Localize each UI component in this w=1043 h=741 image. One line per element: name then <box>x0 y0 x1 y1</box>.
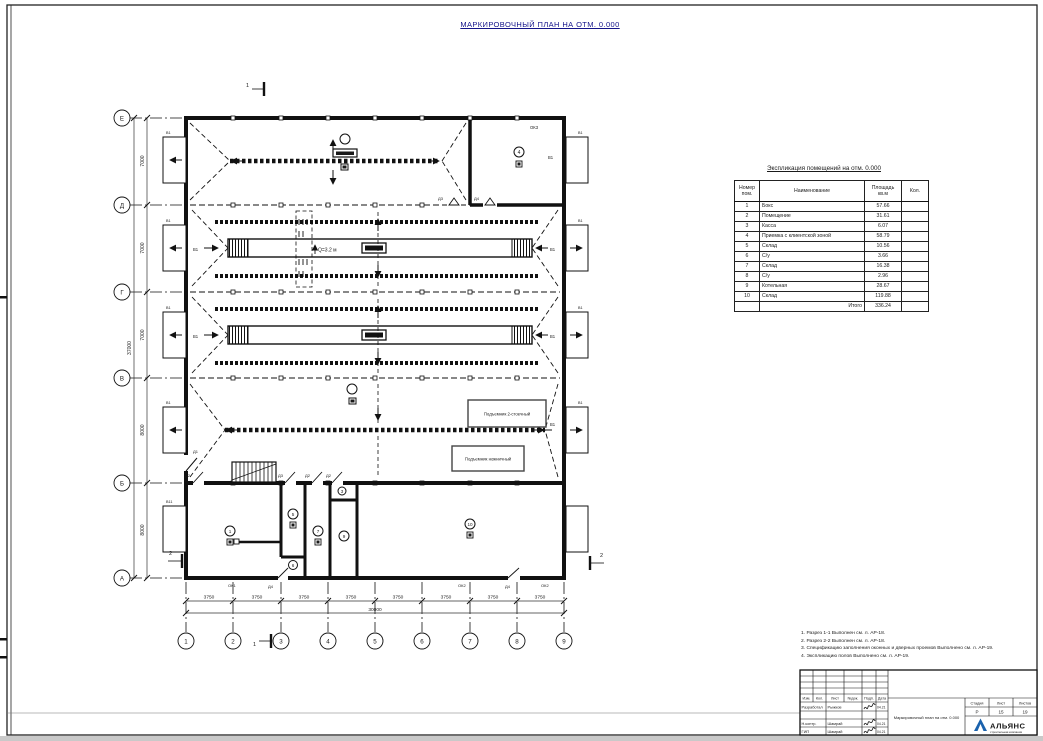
svg-text:3750: 3750 <box>252 595 263 601</box>
svg-text:1: 1 <box>246 83 249 89</box>
svg-text:3750: 3750 <box>204 595 215 601</box>
window-label-v11: В11 <box>166 500 172 504</box>
stairs <box>232 462 276 482</box>
svg-text:1: 1 <box>229 529 232 534</box>
svg-text:8000: 8000 <box>140 424 146 435</box>
window-label: В1 <box>193 247 199 252</box>
svg-text:5: 5 <box>373 639 377 646</box>
explication-title: Экспликация помещений на отм. 0.000 <box>734 165 914 172</box>
door-label: Д4 <box>505 584 511 589</box>
svg-text:В1: В1 <box>578 401 583 405</box>
svg-text:Шамрай: Шамрай <box>828 721 843 726</box>
title-block: Изм. Кол. Лист №док. Подп. Дата Разработ… <box>800 670 1037 735</box>
room-tag-number: 4 <box>518 150 521 156</box>
svg-text:Разработал: Разработал <box>802 705 823 710</box>
drawing-sheet: МАРКИРОВОЧНЫЙ ПЛАН НА ОТМ. 0.000 <box>0 0 1043 741</box>
svg-text:В1: В1 <box>578 219 583 223</box>
svg-text:10: 10 <box>467 522 473 527</box>
table-row: 7Склад16.38 <box>735 262 929 272</box>
total-label: Итого <box>760 302 865 312</box>
svg-text:2: 2 <box>169 551 172 557</box>
equipment-tag <box>333 134 357 170</box>
note-line: 2. Разрез 2-2 Выполнен см. л. АР-18. <box>801 638 1036 646</box>
table-row: 2Помещение31.61 <box>735 212 929 222</box>
table-row: 1Бокс57.66 <box>735 202 929 212</box>
svg-text:3: 3 <box>279 639 283 646</box>
bottom-total-dim: 30000 <box>368 607 382 613</box>
svg-text:Р: Р <box>975 710 978 715</box>
svg-text:В1: В1 <box>166 401 171 405</box>
opening-label: ОК2 <box>541 583 549 588</box>
door-label: Д4 <box>474 196 480 201</box>
svg-text:В1: В1 <box>578 306 583 310</box>
svg-text:7000: 7000 <box>140 242 146 253</box>
svg-text:ГИП: ГИП <box>802 729 810 734</box>
svg-text:Подп.: Подп. <box>864 697 874 701</box>
note-line: 1. Разрез 1-1 Выполнен см. л. АР-18. <box>801 630 1036 638</box>
svg-text:9: 9 <box>343 534 346 539</box>
svg-text:15: 15 <box>998 710 1004 715</box>
window-label: В1 <box>550 334 556 339</box>
svg-text:8000: 8000 <box>140 524 146 535</box>
table-row: 5Склад10.56 <box>735 242 929 252</box>
band-3: В1 В1 <box>192 297 558 373</box>
door-label: Д3 <box>278 473 284 478</box>
edge-window-arrows <box>170 160 582 430</box>
svg-text:Лист: Лист <box>831 697 839 701</box>
note-line: 3. Спецификацию заполнения оконных и две… <box>801 645 1036 653</box>
svg-text:3750: 3750 <box>299 595 310 601</box>
table-row: 4Приемка с клиентской зоной58.79 <box>735 232 929 242</box>
svg-text:Н.контр.: Н.контр. <box>802 721 817 726</box>
svg-text:Лист: Лист <box>997 702 1006 706</box>
table-row: 6С/у3.66 <box>735 252 929 262</box>
left-total-dim: 37000 <box>127 341 133 355</box>
svg-text:8: 8 <box>515 639 519 646</box>
window-label: В1 <box>193 334 199 339</box>
band-1: 4 ОК3 В1 Д3 Д4 <box>190 123 554 209</box>
svg-text:В1: В1 <box>166 306 171 310</box>
door-label: Д2 <box>185 473 191 478</box>
svg-text:Шамрай: Шамрай <box>828 729 843 734</box>
window-label: В1 <box>550 247 556 252</box>
explication-table: Номер пом. Наименование Площадь кв.м Кол… <box>734 180 929 312</box>
doc-title: Маркировочный план на отм. 0.000 <box>894 715 960 720</box>
svg-text:3: 3 <box>341 489 344 494</box>
opening-label: ОК1 <box>228 583 236 588</box>
svg-text:4: 4 <box>326 639 330 646</box>
lift-box-1-label: Подъемник 2-стоечный <box>484 412 531 417</box>
svg-text:1: 1 <box>184 639 188 646</box>
svg-text:04.21: 04.21 <box>877 730 886 734</box>
table-row: 9Котельная28.67 <box>735 282 929 292</box>
building-outline <box>186 118 564 578</box>
sheet-frame <box>0 5 1037 735</box>
explication-header-row: Номер пом. Наименование Площадь кв.м Кол… <box>735 181 929 202</box>
explication-block: Экспликация помещений на отм. 0.000 Номе… <box>734 165 914 312</box>
svg-text:7: 7 <box>468 639 472 646</box>
svg-text:04.21: 04.21 <box>877 722 886 726</box>
door-label: Д4 <box>268 584 274 589</box>
equipment-tag <box>347 384 357 404</box>
lift-box-2-label: Подъемник ножничный <box>465 457 512 462</box>
opening-label-ok3: ОК3 <box>530 125 539 130</box>
svg-text:7000: 7000 <box>140 155 146 166</box>
svg-text:В: В <box>120 376 124 383</box>
svg-text:6: 6 <box>292 563 295 568</box>
band-5: Д2 Д3 Д2 Д2 <box>185 462 564 589</box>
svg-text:Кол.: Кол. <box>816 697 823 701</box>
svg-text:№док.: №док. <box>848 697 859 701</box>
table-row: 3Касса6.07 <box>735 222 929 232</box>
room-tag: 4 <box>514 147 524 167</box>
svg-text:2: 2 <box>600 553 603 559</box>
svg-text:6: 6 <box>420 639 424 646</box>
svg-text:1: 1 <box>253 642 256 648</box>
svg-text:5: 5 <box>292 512 295 517</box>
svg-text:Б: Б <box>120 481 124 488</box>
svg-text:2: 2 <box>231 639 235 646</box>
door-label: Д2 <box>326 473 332 478</box>
logo-subtitle: строительная компания <box>990 730 1022 734</box>
table-row: 10Склад119.88 <box>735 292 929 302</box>
svg-text:Дата: Дата <box>878 697 887 701</box>
window-label: В1 <box>550 422 556 427</box>
svg-text:Листов: Листов <box>1019 702 1031 706</box>
svg-text:Стадия: Стадия <box>971 702 984 706</box>
band-2: Q=3.2 м В1 В1 <box>192 210 558 287</box>
svg-text:04.21: 04.21 <box>877 706 886 710</box>
svg-text:Е: Е <box>120 116 124 123</box>
bottom-dimensions: 3750 3750 3750 3750 3750 3750 3750 3750 … <box>178 582 572 649</box>
svg-text:3750: 3750 <box>535 595 546 601</box>
svg-text:7000: 7000 <box>140 329 146 340</box>
table-row: 8С/у2.96 <box>735 272 929 282</box>
svg-text:3750: 3750 <box>441 595 452 601</box>
opening-label: ОК2 <box>458 583 466 588</box>
svg-text:7: 7 <box>317 529 320 534</box>
note-line: 4. Экспликацию полов Выполнено см. л. АР… <box>801 653 1036 661</box>
total-row: Итого 336.24 <box>735 302 929 312</box>
page-bottom-strip <box>0 736 1043 741</box>
svg-text:3750: 3750 <box>346 595 357 601</box>
door-label: Д3 <box>438 196 444 201</box>
svg-text:3750: 3750 <box>488 595 499 601</box>
door-label: Д2 <box>305 473 311 478</box>
window-label: В1 <box>548 155 554 160</box>
svg-text:Изм.: Изм. <box>803 697 811 701</box>
svg-text:В1: В1 <box>578 131 583 135</box>
total-value: 336.24 <box>865 302 902 312</box>
svg-text:В1: В1 <box>166 219 171 223</box>
svg-text:Рыжков: Рыжков <box>828 705 842 710</box>
door-label: Д1 <box>193 449 199 454</box>
col-axis-bubbles: 1 2 3 4 5 6 7 8 9 <box>178 633 572 649</box>
svg-text:9: 9 <box>562 639 566 646</box>
svg-text:3750: 3750 <box>393 595 404 601</box>
svg-text:В1: В1 <box>166 131 171 135</box>
svg-text:19: 19 <box>1022 710 1028 715</box>
notes-block: 1. Разрез 1-1 Выполнен см. л. АР-18. 2. … <box>801 630 1036 660</box>
height-label: Q=3.2 м <box>318 248 337 254</box>
